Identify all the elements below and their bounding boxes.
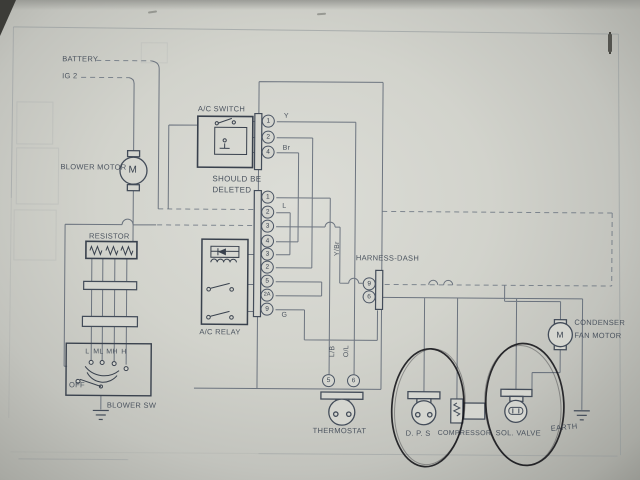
harness-dash-label: HARNESS-DASH [356,253,419,262]
wire-label-y-br: Y/Br [334,241,341,256]
connector-pin: 9 [363,277,376,290]
earth-ground-symbol [574,411,590,420]
connector-pin: 3 [261,220,274,233]
condenser-motor-m: M [556,330,563,340]
ac-switch-box [198,116,253,167]
page-bleed-through [12,42,167,460]
connector-pin: 6 [347,374,360,387]
blower-motor-m: M [128,165,136,176]
thermostat-symbol [321,392,363,425]
resistor-label: RESISTOR [89,231,130,240]
wire-label-y: Y [284,113,289,120]
connector-pin: 2 [261,206,274,219]
battery-label: BATTERY [62,54,98,63]
inline-connector-bars [82,281,137,326]
speed-ml-label: ML [93,348,103,355]
dps-symbol [408,392,440,425]
sol-valve-symbol [501,389,532,422]
wire-label-br: Br [283,145,291,152]
connector-pin: 5 [322,374,335,387]
dashed-wires [80,60,614,286]
margin-marking [608,34,612,52]
wire-label-l-b: L/B [329,346,336,357]
blower-ground-symbol [93,410,109,419]
wire-label-l: L [282,203,286,210]
connector-pin: 1 [262,115,275,128]
paper-page: BATTERY IG 2 BLOWER MOTOR M A/C SWITCH S… [0,0,640,480]
compressor-symbol [451,399,485,423]
connector-pin: 4 [261,235,274,248]
connector-pin: 9 [260,303,273,316]
connector-pin: 2 [261,261,274,274]
condenser-label-line1: CONDENSER [574,318,625,327]
ac-relay-box [201,239,248,324]
dps-label: D. P. S [406,429,431,438]
wires [64,60,584,413]
photo-of-wiring-diagram-page: BATTERY IG 2 BLOWER MOTOR M A/C SWITCH S… [0,0,640,480]
wire-label-o-l: O/L [343,345,350,357]
speed-mh-label: MH [106,349,118,356]
thermostat-label: THERMOSTAT [313,426,367,435]
resistor-box [86,241,137,258]
ac-relay-label: A/C RELAY [199,327,240,336]
connector-pin: 4 [262,146,275,159]
blower-motor-label: BLOWER MOTOR [60,162,126,171]
connector-pin: 2 [262,131,275,144]
speed-h-label: H [121,349,126,356]
connector-pin: 1 [261,191,274,204]
connector-pin: 5 [261,275,274,288]
connector-pin: 3 [261,248,274,261]
ignition-label: IG 2 [62,71,77,80]
note-deleted: DELETED [212,185,251,194]
photo-top-shading [0,0,640,10]
note-should-be: SHOULD BE [212,174,261,183]
sol-valve-label: SOL. VALVE [496,428,541,437]
compressor-label: COMPRESSOR [438,430,492,437]
speed-l-label: L [85,348,89,355]
ac-switch-label: A/C SWITCH [198,104,245,113]
blower-sw-label: BLOWER SW [107,401,156,410]
off-label: OFF [69,380,85,389]
connector-pin: 2A [261,289,274,302]
wire-label-g: G [281,312,287,319]
connector-pin: 6 [363,290,376,303]
condenser-label-line2: FAN MOTOR [574,331,621,340]
